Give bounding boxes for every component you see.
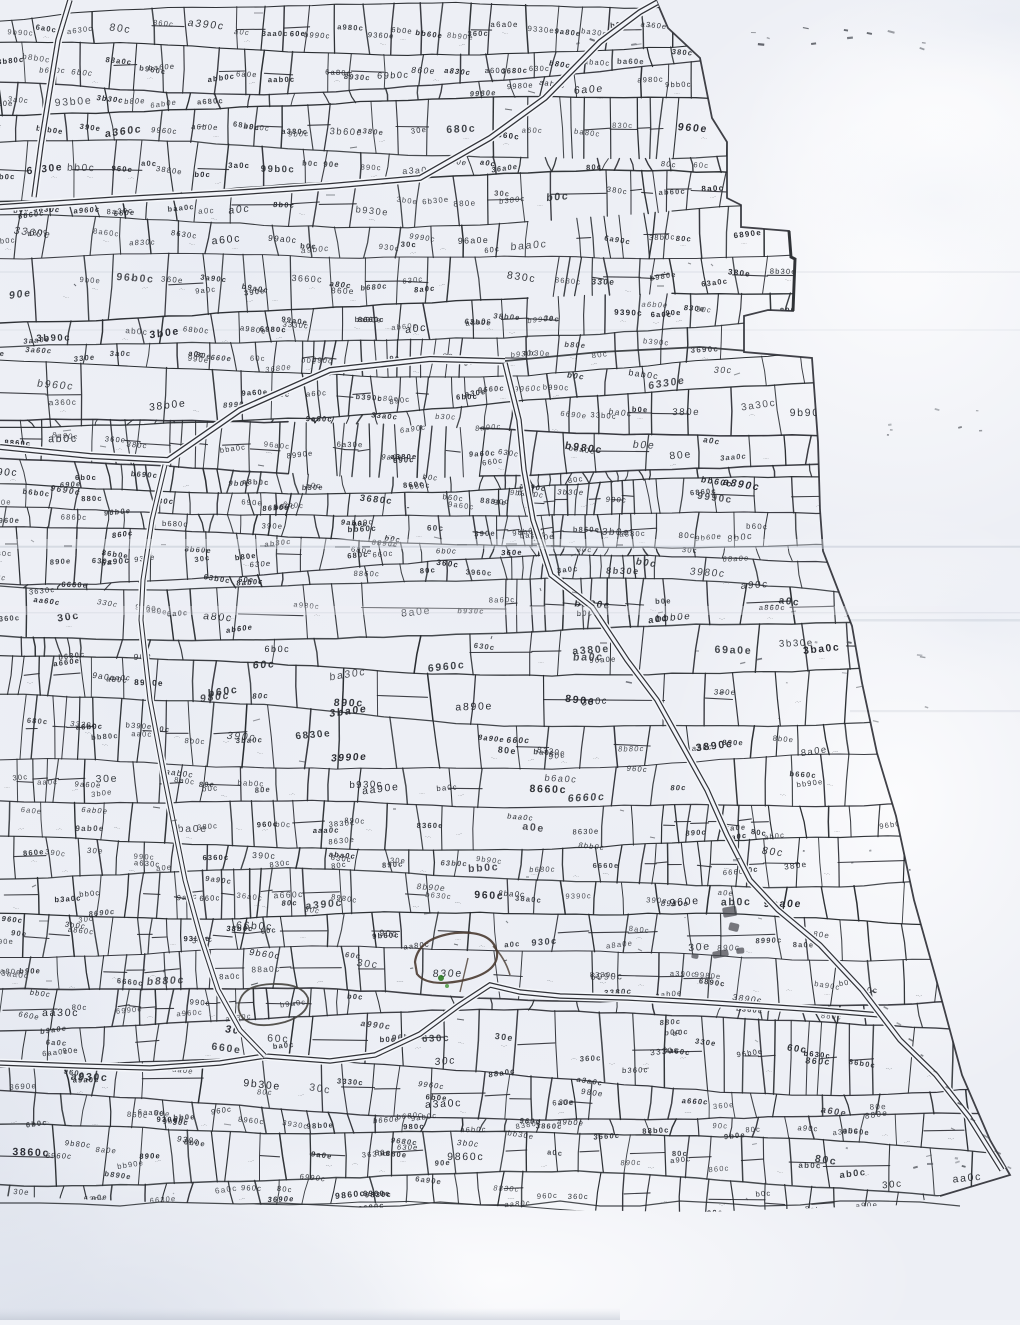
svg-text:9bb0c: 9bb0c: [665, 80, 692, 89]
svg-text:.--.: .--.: [749, 412, 755, 418]
svg-text:b0c: b0c: [0, 235, 16, 245]
svg-text:960e: 960e: [677, 121, 709, 135]
svg-text:3a0c: 3a0c: [109, 349, 132, 358]
svg-text:-..-: -..-: [653, 320, 659, 326]
svg-text:390e: 390e: [474, 529, 496, 539]
svg-text:b60c: b60c: [409, 481, 430, 492]
svg-text:830e: 830e: [432, 968, 463, 981]
svg-text:b30c: b30c: [435, 412, 457, 422]
svg-text:b0c: b0c: [275, 820, 291, 830]
svg-text:660e: 660e: [210, 353, 234, 363]
svg-text:--..: --..: [827, 782, 833, 788]
svg-text:....: ....: [824, 991, 830, 997]
svg-text:-.-.: -.-.: [552, 427, 558, 433]
svg-text:30c: 30c: [12, 772, 29, 782]
svg-text:.-..: .-..: [766, 1068, 772, 1074]
svg-text:a980c: a980c: [637, 75, 664, 85]
svg-text:..-.: ..-.: [77, 1089, 83, 1095]
svg-text:9390c: 9390c: [614, 308, 643, 318]
svg-text:...-: ...-: [248, 1158, 254, 1164]
svg-text:--..: --..: [92, 286, 98, 292]
svg-text:...-: ...-: [306, 366, 312, 372]
svg-text:-.-.: -.-.: [366, 827, 372, 833]
svg-text:8660c: 8660c: [358, 315, 385, 324]
svg-text:.-..: .-..: [5, 246, 11, 252]
svg-text:b0e: b0e: [632, 405, 649, 415]
svg-text:990c: 990c: [605, 495, 627, 505]
svg-text:380e: 380e: [713, 688, 737, 697]
svg-text:3660c: 3660c: [593, 1131, 620, 1142]
svg-text:b880c: b880c: [146, 974, 185, 988]
svg-text:bb0c: bb0c: [67, 163, 96, 174]
svg-text:860c: 860c: [805, 1056, 832, 1067]
svg-text:69b0c: 69b0c: [377, 70, 410, 81]
svg-text:a60c: a60c: [521, 126, 543, 135]
svg-text:....: ....: [763, 455, 769, 461]
svg-text:aa80c: aa80c: [504, 1198, 531, 1209]
svg-text:3680c: 3680c: [501, 66, 528, 76]
svg-text:80e: 80e: [497, 744, 517, 756]
svg-text:8b80c: 8b80c: [617, 744, 645, 753]
svg-text:960c: 960c: [537, 1191, 558, 1201]
svg-text:.-..: .-..: [112, 975, 118, 981]
svg-text:630c: 630c: [529, 64, 551, 73]
svg-text:360e: 360e: [501, 548, 523, 557]
svg-text:b990c: b990c: [304, 30, 332, 40]
svg-text:860e: 860e: [410, 65, 437, 76]
svg-text:.---: .---: [317, 979, 324, 985]
svg-text:9a0e: 9a0e: [381, 452, 404, 461]
svg-text:860c: 860c: [708, 1163, 729, 1174]
svg-text:.-.-: .-.-: [415, 1045, 421, 1051]
svg-text:8a60c: 8a60c: [489, 595, 516, 604]
svg-text:..-.: ..-.: [116, 446, 122, 452]
svg-text:....: ....: [674, 90, 680, 96]
svg-text:--.-: --.-: [413, 904, 420, 910]
svg-text:-...: -...: [625, 288, 631, 294]
svg-text:9830c: 9830c: [365, 1190, 392, 1199]
svg-text:3330c: 3330c: [69, 719, 97, 730]
svg-text:30e: 30e: [558, 1098, 575, 1107]
svg-text:3690e: 3690e: [9, 1081, 37, 1091]
svg-text:b360c: b360c: [622, 1065, 649, 1075]
svg-text:.-..: .-..: [702, 355, 708, 361]
svg-text:8a0c: 8a0c: [414, 284, 436, 295]
svg-text:6360c: 6360c: [202, 853, 229, 862]
svg-text:9860c: 9860c: [447, 1151, 484, 1163]
svg-text:90e: 90e: [665, 308, 681, 318]
svg-text:-..-: -..-: [501, 1043, 507, 1049]
svg-text:....: ....: [4, 784, 10, 790]
svg-text:--..: --..: [413, 369, 419, 375]
svg-text:a6b0e: a6b0e: [191, 122, 219, 132]
svg-text:90e: 90e: [0, 937, 14, 946]
svg-text:..-.: ..-.: [244, 38, 250, 44]
svg-text:....: ....: [819, 655, 825, 661]
svg-text:9960c: 9960c: [514, 383, 543, 393]
svg-text:8b30e: 8b30e: [606, 566, 641, 577]
svg-text:....: ....: [300, 934, 306, 940]
svg-text:690e: 690e: [241, 497, 263, 507]
svg-text:--.-: --.-: [916, 993, 923, 999]
svg-text:.-..: .-..: [638, 982, 644, 988]
svg-text:...-: ...-: [456, 831, 462, 837]
svg-text:-...: -...: [785, 277, 791, 283]
svg-text:...-: ...-: [710, 194, 716, 200]
svg-text:9a80c: 9a80c: [305, 414, 333, 423]
svg-text:b0c: b0c: [422, 472, 440, 482]
svg-text:aaa0c: aaa0c: [312, 826, 340, 835]
svg-text:86b0e: 86b0e: [262, 503, 290, 513]
svg-text:960c: 960c: [241, 1183, 263, 1193]
svg-text:--.-: --.-: [886, 1066, 893, 1072]
svg-text:b0e: b0e: [655, 596, 672, 606]
svg-text:...-: ...-: [541, 1163, 547, 1169]
svg-text:6380c: 6380c: [0, 549, 12, 558]
svg-text:380c: 380c: [126, 440, 149, 451]
svg-text:890e: 890e: [50, 556, 72, 567]
svg-text:a6b0c: a6b0c: [460, 1125, 487, 1134]
svg-text:680c: 680c: [26, 716, 49, 726]
svg-text:....: ....: [538, 659, 544, 665]
svg-text:.---: .---: [558, 1110, 565, 1116]
svg-text:-.-.: -.-.: [425, 834, 431, 840]
svg-text:..--: ..--: [276, 335, 282, 341]
svg-text:80c: 80c: [670, 783, 687, 792]
svg-text:..-.: ..-.: [128, 175, 134, 181]
svg-text:6660e: 6660e: [61, 580, 89, 590]
svg-text:....: ....: [537, 202, 543, 208]
svg-text:b90e: b90e: [19, 966, 41, 975]
svg-text:ba0c: ba0c: [572, 651, 604, 664]
svg-text:.-..: .-..: [433, 77, 439, 83]
svg-text:890c: 890c: [360, 163, 382, 173]
svg-text:3a60c: 3a60c: [24, 345, 53, 355]
svg-text:.--.: .--.: [352, 1161, 358, 1167]
svg-text:80c: 80c: [256, 1087, 273, 1096]
svg-text:990c: 990c: [133, 852, 155, 862]
svg-text:-...: -...: [236, 826, 242, 832]
svg-text:ab0c: ab0c: [0, 172, 16, 181]
svg-text:.--.: .--.: [503, 141, 509, 147]
svg-text:860e: 860e: [23, 847, 45, 858]
svg-text:..--: ..--: [239, 1196, 245, 1202]
svg-text:80c: 80c: [276, 1184, 293, 1195]
svg-text:9980e: 9980e: [507, 80, 534, 91]
svg-text:80c: 80c: [678, 531, 695, 540]
svg-text:---.: ---.: [603, 871, 609, 877]
svg-text:8b0c: 8b0c: [184, 736, 206, 746]
svg-text:b680c: b680c: [529, 865, 556, 874]
svg-text:90c: 90c: [712, 1121, 729, 1130]
svg-text:a90c: a90c: [692, 742, 713, 753]
svg-text:.-..: .-..: [379, 1168, 385, 1174]
svg-text:80c: 80c: [420, 565, 437, 575]
svg-text:ba60e: ba60e: [148, 62, 175, 73]
svg-text:-...: -...: [460, 1109, 466, 1115]
svg-text:b0c: b0c: [546, 190, 569, 204]
svg-text:...-: ...-: [458, 792, 464, 798]
svg-text:6a0c: 6a0c: [45, 1038, 68, 1048]
svg-text:..-.: ..-.: [147, 75, 153, 81]
svg-text:..--: ..--: [528, 757, 534, 763]
svg-text:390e: 390e: [261, 521, 283, 530]
svg-text:88b0c: 88b0c: [642, 1125, 670, 1135]
svg-text:8a0c: 8a0c: [701, 184, 724, 194]
svg-text:a0c: a0c: [228, 203, 250, 217]
svg-text:.-..: .-..: [767, 615, 773, 621]
svg-text:b390e: b390e: [125, 720, 153, 731]
svg-text:-.--: -.--: [0, 559, 3, 565]
svg-text:---.: ---.: [266, 450, 272, 456]
svg-text:....: ....: [254, 902, 260, 908]
svg-text:96a0e: 96a0e: [458, 235, 489, 246]
svg-text:3a0c: 3a0c: [7, 94, 30, 105]
svg-text:....: ....: [500, 395, 506, 401]
svg-text:a0c: a0c: [547, 1147, 564, 1158]
svg-text:60c: 60c: [344, 950, 362, 960]
svg-text:b60c: b60c: [746, 522, 768, 532]
svg-text:3a0c: 3a0c: [228, 161, 250, 170]
svg-text:....: ....: [637, 415, 643, 421]
svg-text:980c: 980c: [403, 1122, 425, 1131]
svg-text:.--.: .--.: [723, 580, 729, 586]
svg-text:90c: 90c: [494, 497, 510, 507]
svg-text:680c: 680c: [347, 550, 369, 561]
svg-text:a0c: a0c: [504, 939, 520, 949]
svg-text:a0e: a0e: [717, 888, 735, 898]
svg-text:..-.: ..-.: [60, 408, 66, 414]
svg-text:a60c: a60c: [306, 388, 327, 398]
svg-text:-..-: -..-: [209, 1013, 215, 1019]
svg-text:a0c: a0c: [233, 27, 251, 37]
svg-text:.-..: .-..: [92, 79, 98, 85]
svg-text:3330c: 3330c: [282, 320, 310, 331]
svg-text:aab0c: aab0c: [268, 75, 295, 84]
svg-text:.-..: .-..: [561, 759, 567, 765]
svg-text:--..: --..: [221, 793, 227, 799]
svg-text:-...: -...: [498, 466, 504, 472]
svg-text:6b0e: 6b0e: [391, 25, 414, 36]
svg-text:--.-: --.-: [326, 1163, 333, 1169]
svg-text:38b0c: 38b0c: [649, 232, 676, 242]
svg-text:9960c: 9960c: [150, 125, 178, 136]
svg-text:..--: ..--: [553, 393, 559, 399]
svg-text:80c: 80c: [281, 898, 298, 908]
svg-text:--..: --..: [458, 1040, 464, 1046]
svg-text:330e: 330e: [591, 276, 616, 286]
svg-text:60c: 60c: [427, 524, 445, 533]
svg-text:..--: ..--: [459, 42, 465, 48]
svg-text:960e: 960e: [111, 164, 134, 174]
svg-text:8630e: 8630e: [573, 827, 600, 837]
svg-text:-...: -...: [746, 949, 752, 955]
svg-text:80c: 80c: [675, 234, 692, 243]
svg-text:8930c: 8930c: [343, 72, 371, 82]
svg-text:6990c: 6990c: [590, 970, 623, 982]
svg-text:b6a0c: b6a0c: [544, 773, 578, 785]
svg-text:a890e: a890e: [455, 700, 493, 713]
svg-text:...-: ...-: [11, 1119, 17, 1125]
svg-text:360c: 360c: [467, 29, 489, 38]
svg-text:a830c: a830c: [129, 237, 156, 247]
svg-text:3b30e: 3b30e: [557, 487, 585, 496]
svg-text:90e: 90e: [435, 1158, 451, 1168]
svg-text:--.-: --.-: [948, 1136, 955, 1142]
svg-text:..-.: ..-.: [309, 285, 315, 291]
svg-text:9980e: 9980e: [469, 88, 497, 98]
svg-text:3690c: 3690c: [690, 344, 719, 354]
svg-text:90e: 90e: [0, 349, 6, 358]
svg-text:..-.: ..-.: [882, 1132, 888, 1138]
svg-text:b690c: b690c: [130, 469, 159, 480]
svg-text:6b0c: 6b0c: [264, 644, 290, 654]
svg-text:8860c: 8860c: [353, 569, 380, 578]
svg-text:960e: 960e: [0, 516, 20, 525]
svg-text:a680c: a680c: [197, 96, 225, 106]
svg-text:..-.: ..-.: [593, 755, 599, 761]
svg-text:-...: -...: [354, 325, 360, 331]
svg-text:6660c: 6660c: [567, 791, 606, 805]
svg-text:b80e: b80e: [124, 96, 147, 106]
svg-text:..--: ..--: [439, 282, 445, 288]
svg-text:.-..: .-..: [573, 873, 579, 879]
svg-text:ab60c: ab60c: [658, 187, 685, 197]
svg-text:a390c: a390c: [670, 969, 697, 979]
svg-text:.-..: .-..: [786, 987, 792, 993]
svg-text:b0e: b0e: [632, 439, 657, 452]
svg-text:8830c: 8830c: [492, 1183, 520, 1193]
svg-text:88a0c: 88a0c: [251, 963, 280, 974]
svg-text:990c: 990c: [311, 355, 333, 365]
svg-text:-...: -...: [502, 30, 508, 36]
svg-text:3960c: 3960c: [466, 567, 493, 577]
svg-text:-...: -...: [570, 355, 576, 361]
svg-text:.-..: .-..: [51, 174, 57, 180]
svg-text:...-: ...-: [581, 503, 587, 509]
svg-text:3990e: 3990e: [331, 752, 368, 765]
svg-text:--..: --..: [262, 904, 268, 910]
svg-text:.-..: .-..: [122, 336, 128, 342]
svg-text:890c: 890c: [382, 859, 404, 869]
svg-text:-...: -...: [87, 174, 93, 180]
svg-text:330c: 330c: [582, 694, 609, 707]
svg-text:-.-.: -.-.: [102, 742, 108, 748]
svg-text:390c: 390c: [225, 730, 257, 744]
svg-text:a930c: a930c: [70, 1071, 109, 1084]
svg-text:9b0c: 9b0c: [288, 129, 310, 138]
svg-text:-.-.: -.-.: [780, 792, 786, 798]
svg-text:63b0c: 63b0c: [440, 858, 469, 868]
svg-text:....: ....: [232, 245, 238, 251]
svg-text:.--.: .--.: [147, 1014, 153, 1020]
svg-text:380c: 380c: [197, 821, 218, 832]
svg-text:....: ....: [170, 941, 176, 947]
svg-text:6660e: 6660e: [593, 861, 620, 870]
svg-text:....: ....: [834, 828, 840, 834]
svg-text:80e: 80e: [198, 780, 215, 789]
svg-text:--..: --..: [547, 978, 553, 984]
svg-text:..-.: ..-.: [222, 338, 228, 344]
svg-text:6ab0e: 6ab0e: [80, 805, 109, 816]
svg-text:9b0e: 9b0e: [79, 275, 101, 285]
svg-text:ab0c: ab0c: [721, 896, 752, 909]
svg-text:....: ....: [205, 1052, 211, 1058]
svg-text:a960c: a960c: [176, 1008, 203, 1019]
svg-text:...-: ...-: [215, 180, 221, 186]
svg-text:660c: 660c: [372, 549, 393, 560]
svg-text:....: ....: [463, 135, 469, 141]
svg-text:a980c: a980c: [337, 22, 364, 32]
svg-text:6960c: 6960c: [45, 1151, 73, 1161]
svg-text:.--.: .--.: [334, 78, 340, 84]
svg-text:3b0e: 3b0e: [601, 527, 631, 538]
svg-text:-...: -...: [491, 755, 497, 761]
svg-text:380e: 380e: [672, 407, 701, 418]
svg-text:..--: ..--: [183, 483, 189, 489]
svg-text:680c: 680c: [446, 122, 476, 136]
svg-text:b860e: b860e: [573, 525, 601, 534]
svg-text:....: ....: [400, 36, 406, 42]
svg-text:a90c: a90c: [797, 1123, 819, 1133]
svg-text:...-: ...-: [298, 1092, 304, 1098]
svg-text:3660c: 3660c: [291, 273, 323, 285]
svg-text:...-: ...-: [379, 138, 385, 144]
svg-text:..--: ..--: [670, 462, 676, 468]
svg-text:--..: --..: [193, 408, 199, 414]
svg-text:b80e: b80e: [564, 340, 588, 350]
svg-text:8660c: 8660c: [529, 783, 567, 796]
svg-text:---.: ---.: [369, 217, 375, 223]
svg-text:.-.-: .-.-: [18, 826, 24, 832]
svg-text:360c: 360c: [568, 1192, 590, 1201]
svg-text:-...: -...: [13, 905, 19, 911]
svg-text:....: ....: [455, 936, 461, 942]
svg-text:b990c: b990c: [0, 467, 19, 479]
svg-text:30e: 30e: [13, 1187, 31, 1197]
svg-text:ba0c: ba0c: [436, 782, 458, 793]
svg-text:60c: 60c: [250, 354, 266, 363]
svg-text:..--: ..--: [676, 318, 682, 324]
svg-text:a6b0e: a6b0e: [641, 300, 670, 310]
svg-text:-..-: -..-: [27, 680, 33, 686]
svg-text:960c: 960c: [626, 764, 649, 774]
svg-text:69a0e: 69a0e: [715, 644, 753, 657]
svg-text:9a60c: 9a60c: [469, 448, 496, 458]
svg-text:3330c: 3330c: [337, 1076, 365, 1087]
svg-text:----: ----: [397, 979, 404, 985]
svg-text:b0c: b0c: [302, 159, 319, 169]
svg-text:b990c: b990c: [543, 383, 570, 393]
svg-text:....: ....: [92, 1121, 98, 1127]
svg-text:-...: -...: [243, 562, 249, 568]
svg-text:--.-: --.-: [648, 1165, 655, 1171]
svg-text:-...: -...: [63, 294, 69, 300]
svg-text:....: ....: [416, 533, 422, 539]
svg-text:-...: -...: [753, 988, 759, 994]
svg-text:8a0e: 8a0e: [95, 1145, 118, 1155]
svg-text:8b30e: 8b30e: [770, 267, 797, 276]
svg-text:80e: 80e: [154, 1109, 172, 1119]
svg-text:60c: 60c: [693, 160, 709, 170]
svg-text:a0c: a0c: [141, 159, 158, 169]
svg-text:-..-: -..-: [609, 1061, 615, 1067]
svg-text:30c: 30c: [435, 1055, 457, 1068]
svg-text:....: ....: [419, 790, 425, 796]
svg-text:8980e: 8980e: [660, 899, 690, 908]
svg-text:360e: 360e: [161, 275, 185, 286]
svg-text:6b0c: 6b0c: [70, 67, 94, 77]
